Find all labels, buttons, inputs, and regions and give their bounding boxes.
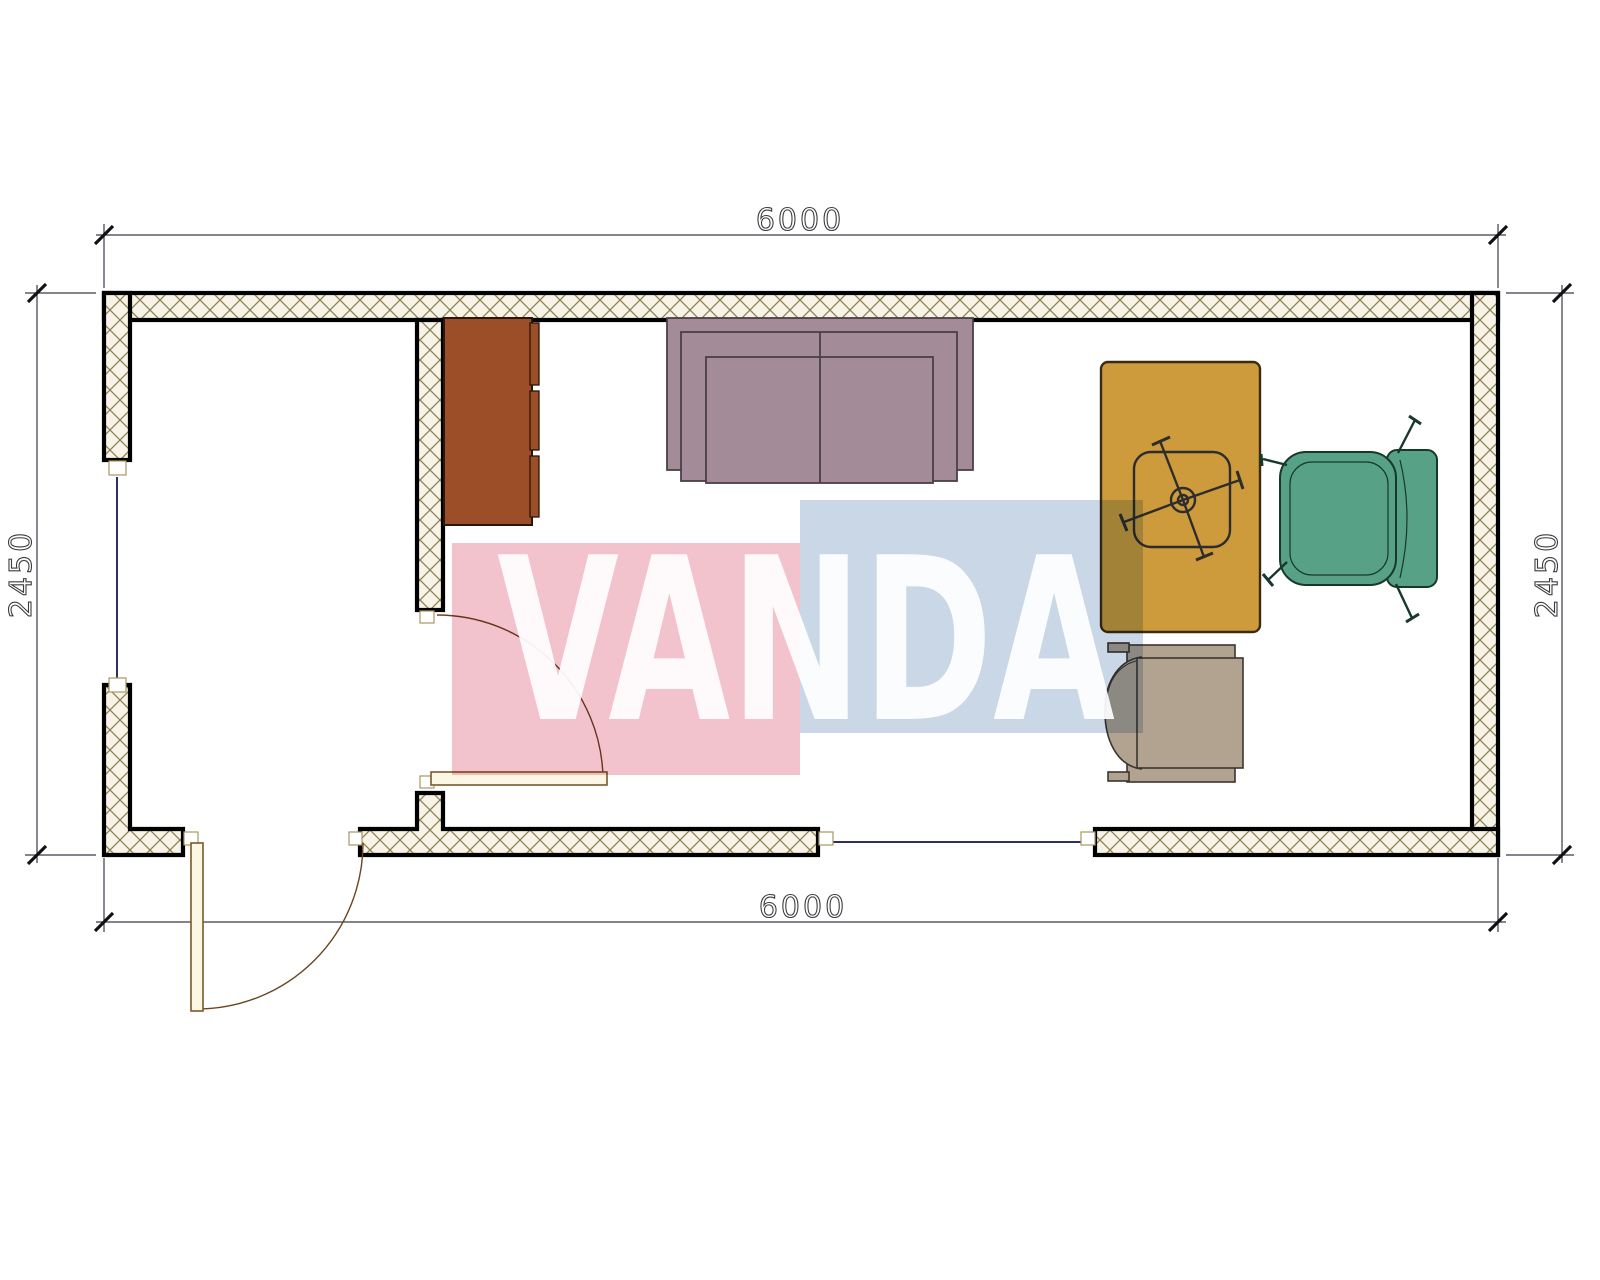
guest-chair-arm — [1108, 772, 1129, 781]
sofa — [667, 318, 973, 483]
armchair-seat — [1280, 452, 1396, 585]
wall-right — [1472, 293, 1498, 855]
exterior-door — [191, 843, 363, 1011]
armchair — [1261, 416, 1437, 622]
wall-left-upper — [104, 293, 130, 460]
door-swing-arc — [197, 843, 363, 1009]
wall-bottom-left — [360, 793, 818, 855]
floor-plan-page: 6000 6000 2450 2450 — [0, 0, 1600, 1280]
watermark: VANDA — [452, 500, 1143, 775]
dim-text-left: 2450 — [4, 530, 39, 618]
watermark-text: VANDA — [497, 510, 1115, 773]
wall-left-lower — [104, 685, 183, 855]
door-leaf — [191, 843, 203, 1011]
cabinet-handle — [530, 391, 539, 450]
wall-top — [104, 293, 1498, 320]
guest-chair-seat — [1137, 658, 1243, 768]
cabinet-body — [444, 318, 532, 525]
floor-plan-drawing: 6000 6000 2450 2450 — [0, 0, 1600, 1280]
wall-bottom-right — [1095, 829, 1498, 855]
dim-text-top: 6000 — [756, 203, 844, 238]
dim-text-right: 2450 — [1530, 530, 1565, 618]
cabinet-handle — [530, 323, 539, 385]
cabinet — [444, 318, 539, 525]
wall-interior-partition — [417, 320, 443, 610]
cabinet-handle — [530, 456, 539, 517]
dim-text-bottom: 6000 — [759, 890, 847, 925]
